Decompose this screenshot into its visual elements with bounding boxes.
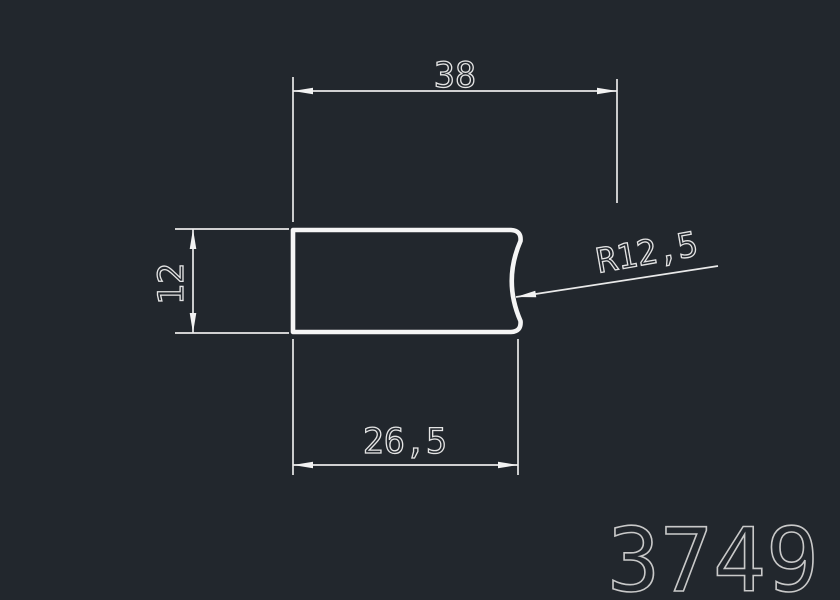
arrowhead-right [597, 88, 617, 95]
dimension-overall-width: 38 [293, 56, 617, 222]
dimension-text-height: 12 [152, 263, 192, 305]
part-outline [293, 230, 521, 332]
arrowhead-right [498, 462, 518, 469]
arrowhead-top [190, 229, 197, 249]
radius-leader: R12,5 [516, 225, 718, 301]
arrowhead-leader [516, 291, 537, 301]
cad-drawing-canvas: 38 12 26,5 R12,5 3749 [0, 0, 840, 600]
arrowhead-bottom [190, 313, 197, 333]
cad-drawing-svg: 38 12 26,5 R12,5 3749 [0, 0, 840, 600]
dimension-text-overall-width: 38 [434, 56, 476, 96]
radius-text: R12,5 [593, 225, 701, 282]
dimension-height: 12 [152, 229, 289, 333]
dimension-text-partial-width: 26,5 [363, 422, 447, 462]
part-number: 3749 [607, 509, 819, 600]
arrowhead-left [293, 88, 313, 95]
dimension-partial-width: 26,5 [293, 339, 518, 475]
arrowhead-left [293, 462, 313, 469]
